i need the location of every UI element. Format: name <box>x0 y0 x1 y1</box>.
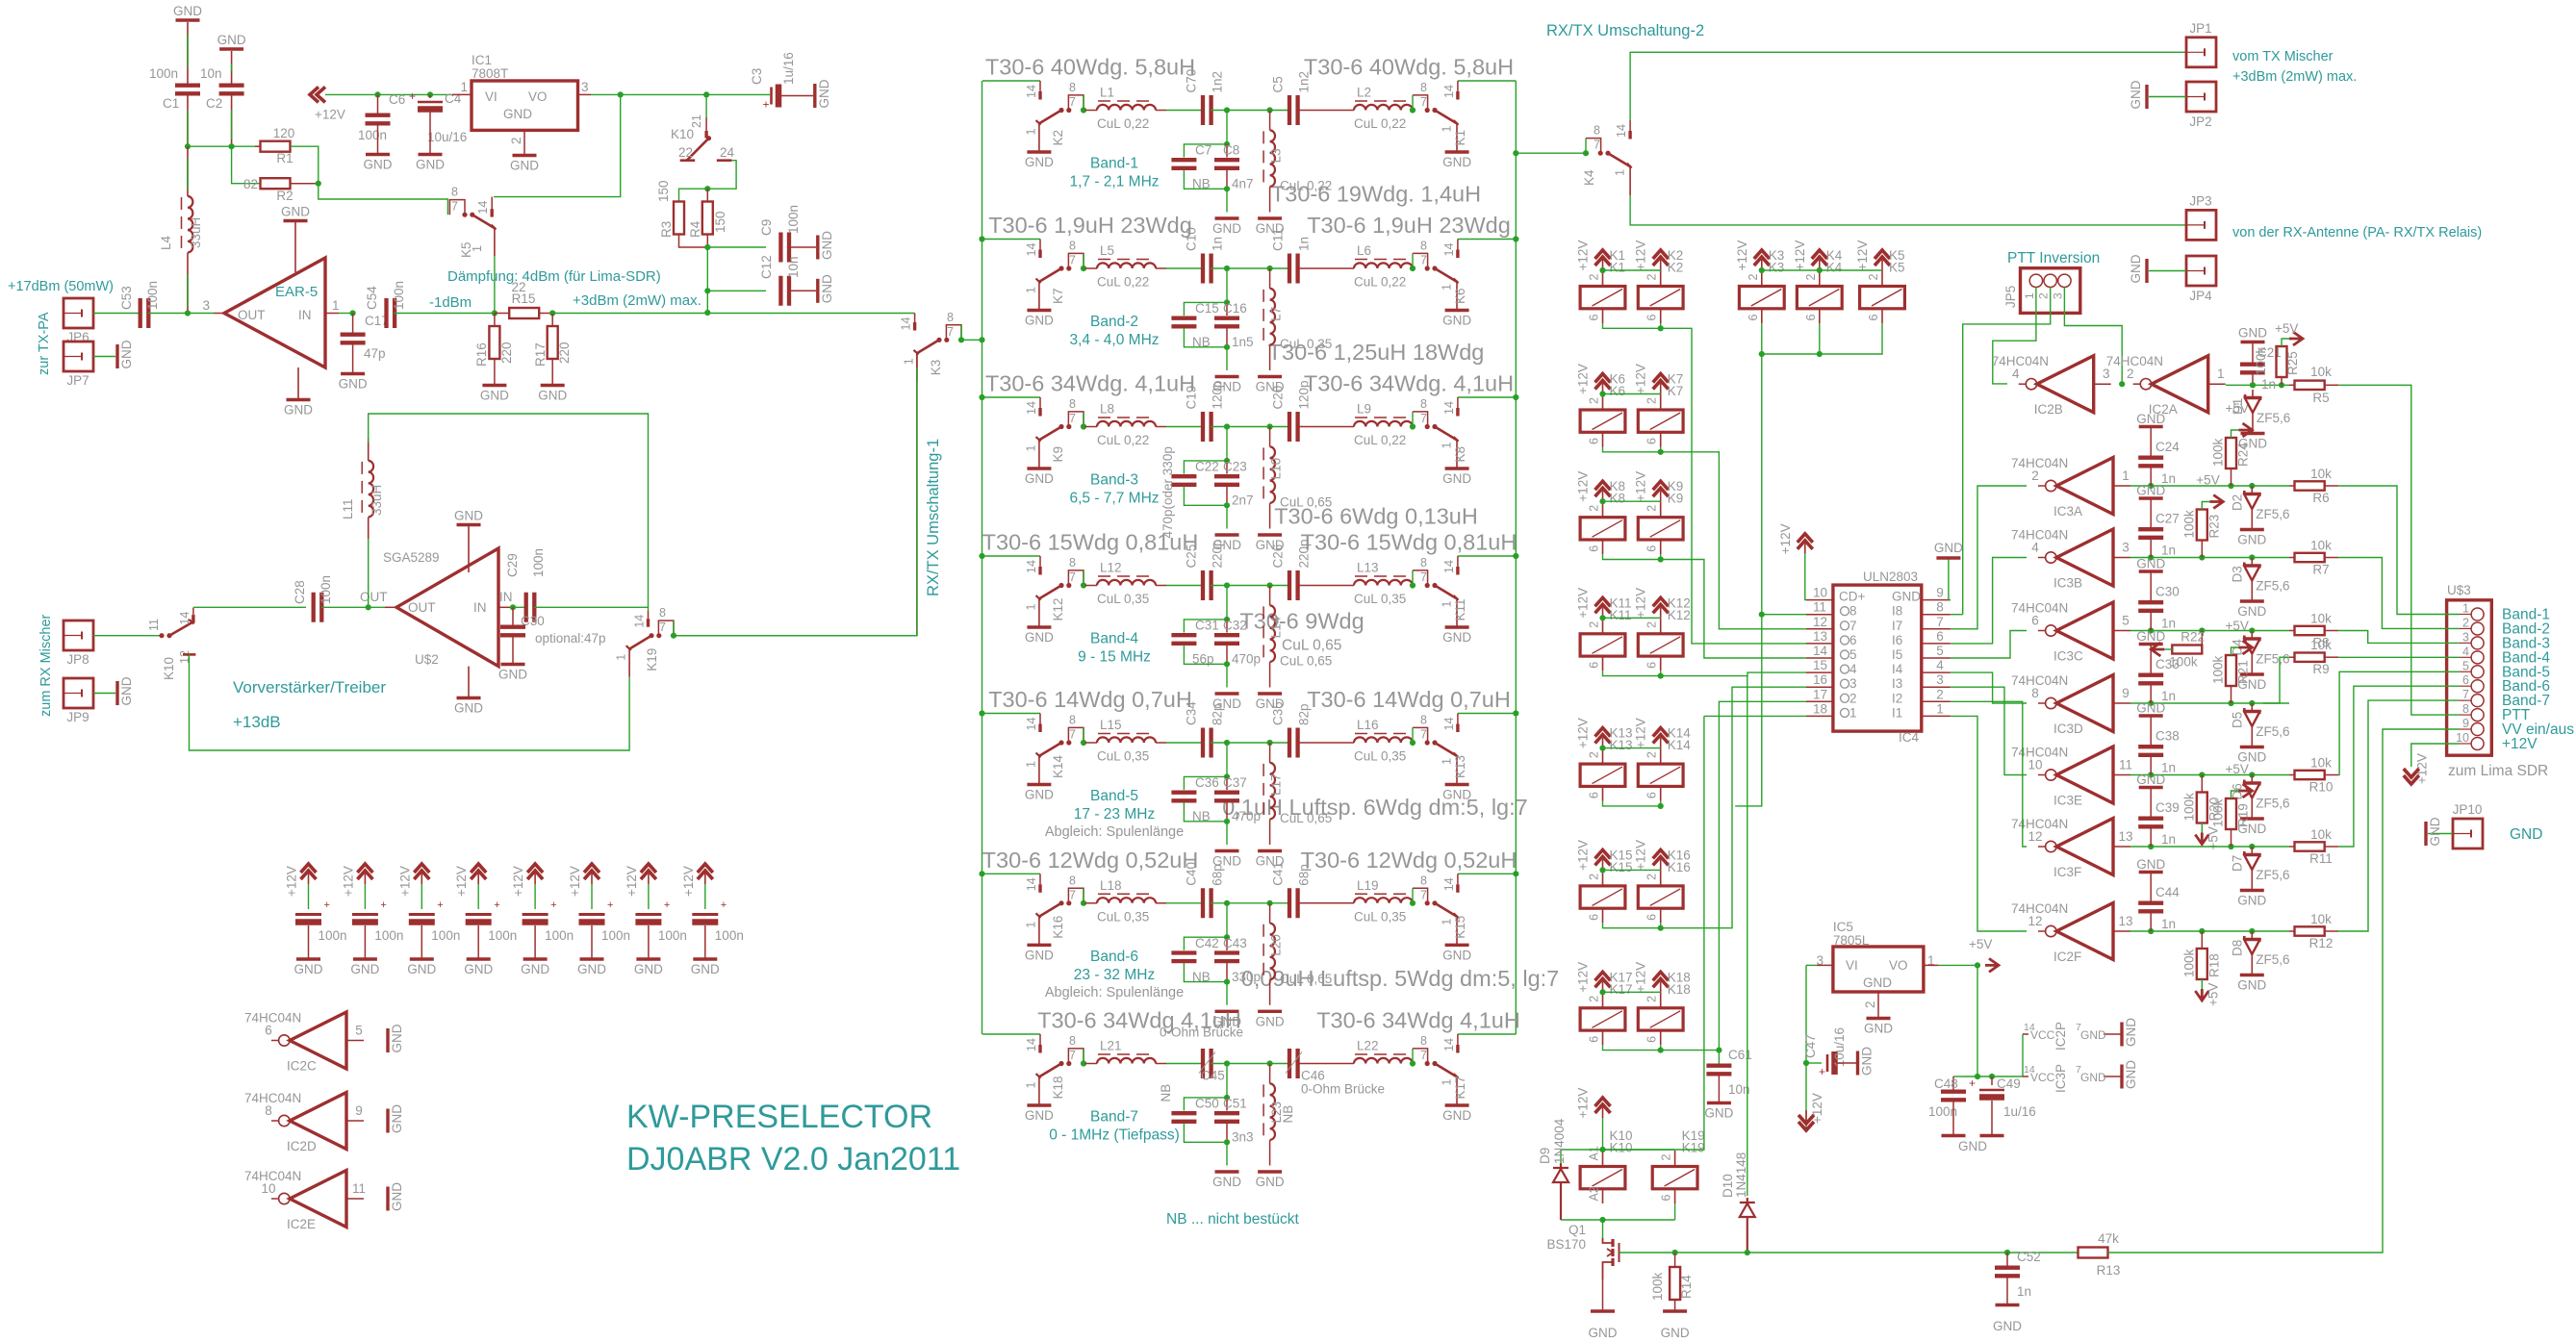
svg-text:GND: GND <box>817 79 831 108</box>
svg-text:3: 3 <box>2462 630 2469 644</box>
svg-text:10: 10 <box>2028 758 2042 772</box>
svg-text:L11: L11 <box>341 498 355 519</box>
svg-text:Vorverstärker/Treiber: Vorverstärker/Treiber <box>233 678 386 696</box>
svg-text:GND: GND <box>1025 155 1054 169</box>
svg-text:1: 1 <box>1441 1079 1454 1086</box>
svg-text:JP10: JP10 <box>2453 802 2483 817</box>
svg-text:T30-6 40Wdg. 5,8uH: T30-6 40Wdg. 5,8uH <box>985 55 1195 80</box>
svg-text:C41: C41 <box>1270 862 1285 886</box>
svg-text:+5V: +5V <box>2206 983 2220 1006</box>
svg-text:7: 7 <box>1069 412 1076 425</box>
svg-text:+12V: +12V <box>315 107 345 121</box>
svg-text:C38: C38 <box>2155 729 2180 744</box>
svg-text:14: 14 <box>1442 560 1456 573</box>
svg-text:+12V: +12V <box>1576 241 1591 271</box>
svg-text:+12V: +12V <box>2414 753 2429 784</box>
svg-text:CuL 0,35: CuL 0,35 <box>1354 592 1406 606</box>
svg-text:I4: I4 <box>1892 662 1903 676</box>
svg-text:K12: K12 <box>1668 608 1691 622</box>
svg-text:R23: R23 <box>2206 515 2221 539</box>
svg-text:0-Ohm Brücke: 0-Ohm Brücke <box>1301 1082 1385 1097</box>
svg-text:IC3E: IC3E <box>2053 794 2082 808</box>
svg-text:+12V: +12V <box>1634 471 1648 502</box>
svg-text:6: 6 <box>2462 673 2469 687</box>
svg-text:GND: GND <box>407 962 436 976</box>
svg-text:11: 11 <box>2119 758 2132 772</box>
svg-text:C8: C8 <box>1223 143 1239 158</box>
svg-text:10k: 10k <box>2310 467 2332 481</box>
svg-text:100k: 100k <box>2181 949 2196 977</box>
svg-text:Band-3: Band-3 <box>1090 472 1138 489</box>
svg-text:GND: GND <box>2124 1060 2138 1089</box>
svg-text:GND: GND <box>173 4 202 18</box>
svg-text:8: 8 <box>659 606 666 620</box>
svg-text:R7: R7 <box>2312 563 2329 577</box>
svg-text:14: 14 <box>1025 1038 1038 1051</box>
svg-text:+12V: +12V <box>625 866 639 897</box>
svg-text:100n: 100n <box>658 928 687 943</box>
svg-text:220p: 220p <box>1296 539 1311 568</box>
svg-text:2: 2 <box>2037 292 2051 299</box>
svg-text:+12V: +12V <box>1634 364 1648 394</box>
svg-text:K14: K14 <box>1668 738 1692 752</box>
svg-text:GND: GND <box>1892 590 1921 604</box>
svg-text:5: 5 <box>2122 614 2130 628</box>
svg-text:6: 6 <box>1645 662 1659 669</box>
svg-text:2: 2 <box>1588 274 1601 281</box>
svg-text:1: 1 <box>1024 1082 1037 1089</box>
svg-text:L8: L8 <box>1100 402 1114 417</box>
svg-text:K6: K6 <box>1610 384 1626 398</box>
svg-text:I2: I2 <box>1892 691 1902 705</box>
svg-text:+12V: +12V <box>1634 588 1648 619</box>
svg-text:2: 2 <box>509 137 523 144</box>
svg-text:1n: 1n <box>1210 237 1224 251</box>
svg-text:1: 1 <box>2122 468 2130 483</box>
svg-text:GND: GND <box>390 1182 404 1211</box>
svg-text:2: 2 <box>1660 1154 1673 1161</box>
svg-text:CuL 0,22: CuL 0,22 <box>1097 116 1149 131</box>
svg-text:GND: GND <box>1256 1175 1285 1189</box>
svg-text:ZF5,6: ZF5,6 <box>2256 952 2289 967</box>
svg-text:470p(oder 330p: 470p(oder 330p <box>1160 446 1175 538</box>
svg-text:8: 8 <box>1420 397 1427 411</box>
svg-text:R12: R12 <box>2309 936 2334 950</box>
svg-text:C10: C10 <box>1184 227 1198 251</box>
svg-text:GND: GND <box>1993 1319 2022 1333</box>
svg-text:GND: GND <box>691 962 720 976</box>
svg-text:GND: GND <box>2080 1028 2106 1042</box>
svg-text:C23: C23 <box>1223 460 1247 474</box>
svg-text:GND: GND <box>2136 701 2165 716</box>
svg-text:1: 1 <box>1024 129 1037 136</box>
svg-text:7: 7 <box>659 620 666 634</box>
svg-text:1n: 1n <box>2017 1284 2031 1299</box>
svg-text:L1: L1 <box>1100 86 1114 100</box>
svg-text:ZF5,6: ZF5,6 <box>2256 724 2289 739</box>
svg-text:14: 14 <box>1025 877 1038 891</box>
svg-text:+12V: +12V <box>1634 962 1648 993</box>
svg-text:82p: 82p <box>1210 703 1224 725</box>
svg-text:CuL 0,35: CuL 0,35 <box>1097 749 1149 764</box>
svg-text:IC3D: IC3D <box>2053 722 2083 736</box>
svg-text:+: + <box>550 899 556 911</box>
svg-text:K11: K11 <box>1453 598 1467 620</box>
svg-text:7: 7 <box>1420 728 1427 742</box>
svg-text:1: 1 <box>2462 602 2469 616</box>
svg-text:+: + <box>763 98 770 112</box>
svg-text:CuL 0,22: CuL 0,22 <box>1354 116 1406 131</box>
svg-text:74HC04N: 74HC04N <box>244 1091 301 1105</box>
svg-text:C26: C26 <box>1270 544 1285 569</box>
svg-text:7: 7 <box>1069 254 1076 267</box>
svg-text:24: 24 <box>720 145 735 160</box>
svg-text:3: 3 <box>581 80 589 94</box>
svg-text:D10: D10 <box>1721 1174 1735 1198</box>
svg-text:K8: K8 <box>1610 492 1626 506</box>
svg-text:+12V: +12V <box>1778 523 1793 554</box>
svg-text:100n: 100n <box>319 575 333 604</box>
svg-text:T30-6 12Wdg 0,52uH: T30-6 12Wdg 0,52uH <box>1301 848 1518 873</box>
svg-text:+5V: +5V <box>2196 473 2219 488</box>
svg-text:GND: GND <box>1442 788 1471 802</box>
svg-text:+5V: +5V <box>2275 321 2298 336</box>
svg-text:10k: 10k <box>2310 539 2332 553</box>
svg-text:+12V: +12V <box>1634 241 1648 271</box>
svg-text:120: 120 <box>273 126 295 140</box>
svg-text:GND: GND <box>1958 1139 1987 1153</box>
svg-text:12: 12 <box>2028 914 2042 928</box>
svg-text:7808T: 7808T <box>472 66 508 81</box>
svg-text:5: 5 <box>1936 644 1944 658</box>
svg-text:14: 14 <box>1442 1038 1456 1051</box>
svg-text:R3: R3 <box>659 221 674 238</box>
svg-text:+12V: +12V <box>341 866 355 897</box>
svg-text:8: 8 <box>1594 124 1600 138</box>
svg-text:IC2B: IC2B <box>2034 402 2063 417</box>
svg-text:+12V: +12V <box>285 866 299 897</box>
svg-text:GND: GND <box>503 107 532 121</box>
svg-text:K1: K1 <box>1453 130 1467 146</box>
svg-text:14: 14 <box>1025 85 1038 98</box>
svg-text:GND: GND <box>2237 978 2266 993</box>
svg-text:C2: C2 <box>206 96 222 111</box>
svg-text:4: 4 <box>2031 541 2039 555</box>
svg-text:6: 6 <box>1588 792 1601 798</box>
svg-text:6: 6 <box>1645 545 1659 552</box>
svg-text:100n: 100n <box>715 928 744 943</box>
svg-text:7: 7 <box>1420 570 1427 584</box>
svg-text:K3: K3 <box>1769 261 1785 275</box>
svg-text:R18: R18 <box>2206 953 2221 977</box>
svg-text:74HC04N: 74HC04N <box>2011 456 2068 470</box>
svg-text:+13dB: +13dB <box>233 713 281 731</box>
svg-text:21: 21 <box>690 114 703 128</box>
svg-text:470p: 470p <box>1232 652 1261 667</box>
svg-text:von der RX-Antenne (PA- RX/TX: von der RX-Antenne (PA- RX/TX Relais) <box>2232 225 2482 241</box>
svg-text:NB: NB <box>1281 1105 1295 1124</box>
svg-text:2: 2 <box>1588 751 1601 758</box>
svg-text:C50: C50 <box>1195 1097 1219 1111</box>
svg-text:R5: R5 <box>2312 391 2329 405</box>
svg-text:K2: K2 <box>1668 261 1684 275</box>
svg-text:GND: GND <box>2237 533 2266 547</box>
svg-text:1: 1 <box>1441 758 1454 765</box>
svg-text:K1: K1 <box>1610 261 1626 275</box>
svg-text:1: 1 <box>460 80 468 94</box>
svg-text:SGA5289: SGA5289 <box>383 550 440 565</box>
svg-text:+3dBm (2mW) max.: +3dBm (2mW) max. <box>2232 69 2357 85</box>
svg-text:7: 7 <box>1069 888 1076 901</box>
svg-text:8: 8 <box>1069 1034 1076 1048</box>
svg-text:4: 4 <box>1936 658 1944 672</box>
svg-text:Abgleich: Spulenlänge: Abgleich: Spulenlänge <box>1045 824 1184 840</box>
svg-text:D5: D5 <box>2230 712 2244 728</box>
svg-text:C16: C16 <box>1223 301 1247 316</box>
svg-text:ZF5,6: ZF5,6 <box>2256 652 2289 667</box>
svg-text:2: 2 <box>1645 996 1659 1002</box>
svg-text:I1: I1 <box>1892 705 1902 720</box>
svg-text:6: 6 <box>1645 1036 1659 1043</box>
svg-text:L4: L4 <box>159 235 173 250</box>
svg-text:C22: C22 <box>1195 460 1219 474</box>
svg-text:10u/16: 10u/16 <box>427 130 467 144</box>
svg-text:C31: C31 <box>1195 619 1219 633</box>
svg-text:GND: GND <box>820 231 834 260</box>
svg-text:VI: VI <box>485 89 497 104</box>
svg-text:GND: GND <box>1025 948 1054 962</box>
svg-text:C11: C11 <box>1270 228 1285 251</box>
svg-text:6: 6 <box>265 1024 272 1038</box>
svg-text:T30-6 12Wdg 0,52uH: T30-6 12Wdg 0,52uH <box>982 848 1199 873</box>
svg-text:470p: 470p <box>1232 809 1261 823</box>
svg-text:2: 2 <box>1804 274 1818 281</box>
svg-text:GND: GND <box>1864 1022 1893 1036</box>
svg-text:D1: D1 <box>2231 398 2245 415</box>
svg-text:4n7: 4n7 <box>1232 177 1254 191</box>
svg-text:R19: R19 <box>2236 803 2251 827</box>
svg-text:+12V: +12V <box>2502 736 2538 752</box>
svg-text:7: 7 <box>1936 615 1944 629</box>
svg-text:10k: 10k <box>2310 756 2332 771</box>
svg-text:7: 7 <box>1069 95 1076 109</box>
svg-text:L2: L2 <box>1357 86 1371 100</box>
svg-text:JP8: JP8 <box>66 652 89 667</box>
svg-text:CuL 0,22: CuL 0,22 <box>1097 433 1149 447</box>
svg-text:VCC: VCC <box>2030 1071 2055 1084</box>
svg-text:L15: L15 <box>1100 718 1122 732</box>
svg-text:7: 7 <box>1420 254 1427 267</box>
svg-text:K2: K2 <box>1051 130 1065 146</box>
svg-text:2: 2 <box>1867 274 1880 281</box>
svg-text:CuL 0,22: CuL 0,22 <box>1280 179 1332 193</box>
svg-text:9: 9 <box>355 1103 363 1118</box>
svg-text:C47: C47 <box>1803 1034 1818 1058</box>
svg-text:2: 2 <box>1588 996 1601 1002</box>
svg-text:-1dBm: -1dBm <box>429 294 472 311</box>
svg-text:74HC04N: 74HC04N <box>2011 528 2068 543</box>
svg-text:10k: 10k <box>2310 612 2332 626</box>
svg-text:GND: GND <box>2136 484 2165 498</box>
svg-text:CuL 0,35: CuL 0,35 <box>1354 909 1406 924</box>
svg-text:zum Lima SDR: zum Lima SDR <box>2448 763 2548 779</box>
svg-text:K17: K17 <box>1610 982 1633 997</box>
svg-text:74HC04N: 74HC04N <box>2106 354 2163 368</box>
svg-text:2: 2 <box>1645 274 1659 281</box>
svg-text:3,4 - 4,0 MHz: 3,4 - 4,0 MHz <box>1069 332 1159 348</box>
svg-text:T30-6 14Wdg 0,7uH: T30-6 14Wdg 0,7uH <box>988 687 1192 712</box>
svg-text:6: 6 <box>1849 633 1857 647</box>
svg-text:1: 1 <box>2217 367 2225 381</box>
svg-text:C53: C53 <box>119 286 134 310</box>
svg-text:14: 14 <box>1442 718 1456 731</box>
svg-text:1: 1 <box>902 358 915 365</box>
svg-text:100n: 100n <box>374 928 403 943</box>
svg-text:8: 8 <box>947 311 954 324</box>
svg-text:GND: GND <box>2136 412 2165 426</box>
svg-text:JP4: JP4 <box>2189 289 2212 303</box>
svg-text:14: 14 <box>1025 243 1038 257</box>
svg-text:GND: GND <box>1025 630 1054 645</box>
svg-text:L12: L12 <box>1100 561 1122 575</box>
svg-text:IN: IN <box>473 600 487 615</box>
svg-text:1: 1 <box>1441 126 1454 133</box>
svg-text:R2: R2 <box>276 189 293 203</box>
svg-text:+12V: +12V <box>1793 241 1807 271</box>
svg-text:+: + <box>380 899 386 911</box>
svg-text:2n7: 2n7 <box>1232 494 1254 508</box>
svg-text:8: 8 <box>1069 874 1076 887</box>
svg-text:C24: C24 <box>2155 440 2180 454</box>
svg-text:1,7 - 2,1 MHz: 1,7 - 2,1 MHz <box>1069 174 1159 190</box>
svg-text:3: 3 <box>2122 541 2130 555</box>
svg-text:7805L: 7805L <box>1833 933 1870 948</box>
svg-text:13: 13 <box>1813 629 1827 644</box>
svg-text:+12V: +12V <box>1634 840 1648 871</box>
svg-text:1: 1 <box>1024 604 1037 611</box>
svg-text:IC2P: IC2P <box>2053 1022 2068 1051</box>
svg-text:ZF5,6: ZF5,6 <box>2256 579 2289 594</box>
svg-text:K19: K19 <box>645 648 659 671</box>
svg-text:3: 3 <box>2051 292 2064 299</box>
svg-text:K7: K7 <box>1668 384 1684 398</box>
svg-text:L16: L16 <box>1357 718 1379 732</box>
svg-text:1u/16: 1u/16 <box>2003 1104 2036 1119</box>
svg-text:GND: GND <box>498 668 527 682</box>
svg-text:T30-6 14Wdg 0,7uH: T30-6 14Wdg 0,7uH <box>1307 687 1511 712</box>
svg-text:14: 14 <box>1813 644 1828 658</box>
svg-text:R16: R16 <box>474 342 489 367</box>
svg-text:L20: L20 <box>1269 934 1284 956</box>
svg-text:GND: GND <box>1256 1014 1285 1028</box>
svg-text:JP5: JP5 <box>2003 286 2018 308</box>
svg-text:C36: C36 <box>1195 775 1219 790</box>
svg-text:I3: I3 <box>1892 676 1902 691</box>
svg-text:6: 6 <box>1588 438 1601 444</box>
svg-text:GND: GND <box>2129 254 2143 283</box>
svg-text:IC3A: IC3A <box>2053 504 2082 519</box>
svg-text:7: 7 <box>2462 688 2469 701</box>
svg-text:C48: C48 <box>1934 1076 1958 1091</box>
svg-text:CuL 0,35: CuL 0,35 <box>1280 337 1332 351</box>
svg-text:GND: GND <box>1661 1326 1690 1340</box>
svg-text:C1: C1 <box>163 96 179 111</box>
svg-text:2: 2 <box>1936 687 1944 701</box>
svg-text:82: 82 <box>243 177 258 191</box>
svg-text:8: 8 <box>1936 600 1944 615</box>
svg-text:L14: L14 <box>1269 616 1284 638</box>
svg-text:100n: 100n <box>392 281 406 310</box>
svg-text:GND: GND <box>634 962 663 976</box>
svg-text:IC3B: IC3B <box>2053 576 2082 591</box>
svg-text:VO: VO <box>1889 958 1908 973</box>
svg-text:10: 10 <box>1813 586 1827 600</box>
svg-text:8: 8 <box>265 1103 272 1118</box>
svg-text:C70: C70 <box>1184 69 1198 93</box>
svg-text:C6: C6 <box>389 92 405 107</box>
svg-text:A2: A2 <box>1588 1186 1601 1201</box>
svg-text:8: 8 <box>1420 556 1427 570</box>
svg-text:GND: GND <box>281 205 310 219</box>
svg-text:K16: K16 <box>1668 860 1691 874</box>
svg-text:U$3: U$3 <box>2447 583 2471 597</box>
svg-text:C19: C19 <box>1184 386 1198 410</box>
svg-text:100n: 100n <box>531 548 546 577</box>
svg-text:GND: GND <box>1442 155 1471 169</box>
svg-text:+12V: +12V <box>1810 1093 1824 1124</box>
svg-text:11: 11 <box>1813 600 1826 615</box>
svg-text:VCC: VCC <box>2030 1028 2055 1042</box>
svg-text:220p: 220p <box>1210 539 1224 568</box>
svg-text:GND: GND <box>2237 894 2266 908</box>
svg-text:IC2F: IC2F <box>2053 950 2081 964</box>
svg-text:+12V: +12V <box>1855 241 1870 271</box>
svg-text:9: 9 <box>2122 686 2130 700</box>
svg-text:2: 2 <box>1849 691 1857 705</box>
svg-text:GND: GND <box>1442 630 1471 645</box>
svg-text:Band-5: Band-5 <box>1090 788 1138 804</box>
svg-text:8: 8 <box>1069 714 1076 727</box>
svg-text:GND: GND <box>1442 471 1471 486</box>
svg-text:K9: K9 <box>1051 446 1065 463</box>
svg-text:23 - 32 MHz: 23 - 32 MHz <box>1074 967 1155 983</box>
svg-text:K3: K3 <box>929 360 943 376</box>
svg-text:C9: C9 <box>759 219 774 236</box>
svg-text:100n: 100n <box>488 928 517 943</box>
svg-text:33uH: 33uH <box>370 485 384 516</box>
svg-text:150: 150 <box>656 180 671 202</box>
svg-text:6: 6 <box>1867 315 1880 321</box>
svg-text:IC2D: IC2D <box>287 1139 317 1153</box>
svg-text:3: 3 <box>202 298 210 313</box>
svg-text:K13: K13 <box>1453 755 1467 778</box>
svg-text:GND: GND <box>1442 314 1471 328</box>
svg-text:2: 2 <box>1645 397 1659 404</box>
svg-text:15: 15 <box>1813 658 1827 672</box>
svg-text:IC1: IC1 <box>472 53 492 67</box>
svg-text:GND: GND <box>1704 1106 1733 1121</box>
svg-text:C44: C44 <box>2155 885 2180 899</box>
svg-text:L22: L22 <box>1357 1039 1379 1053</box>
svg-text:2: 2 <box>2127 367 2134 381</box>
svg-text:0-Ohm Brücke: 0-Ohm Brücke <box>1160 1025 1243 1040</box>
svg-text:+: + <box>324 899 330 911</box>
svg-text:GND: GND <box>2080 1071 2106 1084</box>
svg-text:T30-6 1,9uH 23Wdg: T30-6 1,9uH 23Wdg <box>1307 213 1511 238</box>
svg-text:I7: I7 <box>1892 619 1902 633</box>
svg-text:R25: R25 <box>2285 351 2300 375</box>
svg-text:K18: K18 <box>1051 1076 1065 1099</box>
